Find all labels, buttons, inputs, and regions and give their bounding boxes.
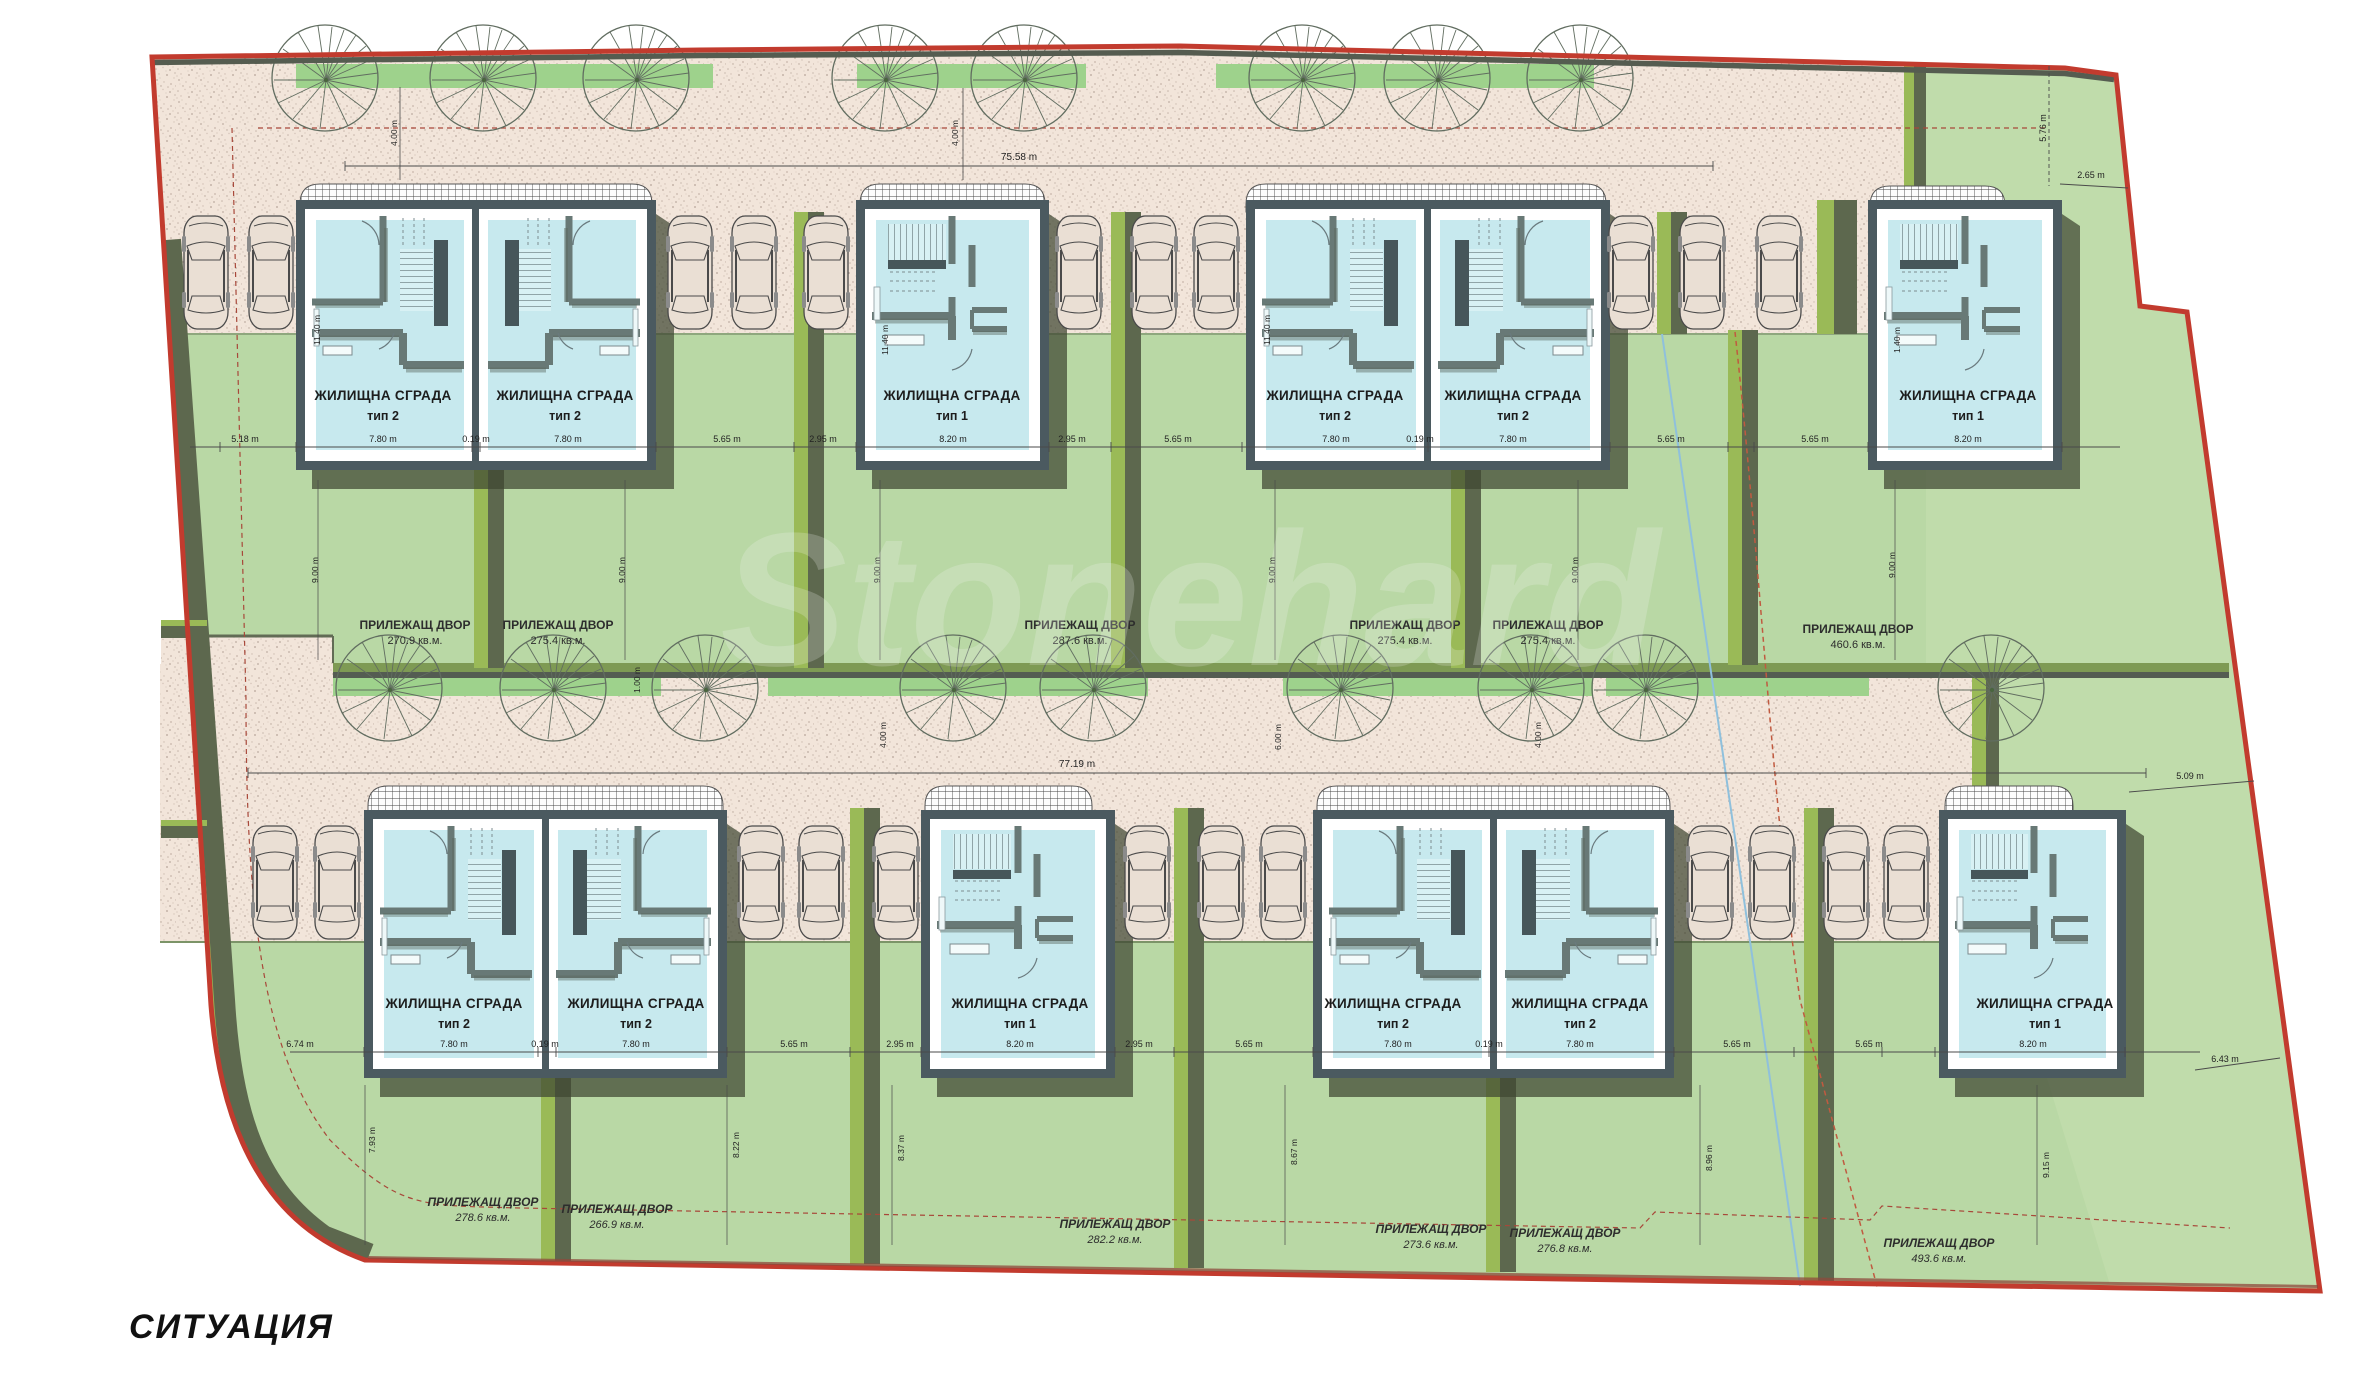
svg-text:2.65 m: 2.65 m (2077, 170, 2105, 180)
svg-text:6.74 m: 6.74 m (286, 1039, 314, 1049)
svg-text:8.20 m: 8.20 m (939, 434, 967, 444)
svg-text:ПРИЛЕЖАЩ ДВОР: ПРИЛЕЖАЩ ДВОР (1884, 1236, 1996, 1250)
svg-text:тип 2: тип 2 (549, 409, 581, 423)
svg-text:тип 2: тип 2 (1497, 409, 1529, 423)
svg-text:тип 2: тип 2 (620, 1017, 652, 1031)
svg-text:273.6 кв.м.: 273.6 кв.м. (1402, 1239, 1458, 1251)
svg-text:5.65 m: 5.65 m (1723, 1039, 1751, 1049)
svg-text:ЖИЛИЩНА СГРАДА: ЖИЛИЩНА СГРАДА (1510, 996, 1648, 1011)
svg-text:276.8 кв.м.: 276.8 кв.м. (1536, 1243, 1592, 1255)
svg-text:2.95 m: 2.95 m (809, 434, 837, 444)
svg-text:75.58 m: 75.58 m (1001, 152, 1037, 163)
svg-text:тип 2: тип 2 (438, 1017, 470, 1031)
svg-text:5.76 m: 5.76 m (2038, 114, 2048, 142)
svg-text:тип 1: тип 1 (1952, 409, 1984, 423)
svg-text:7.80 m: 7.80 m (554, 434, 582, 444)
svg-text:ЖИЛИЩНА СГРАДА: ЖИЛИЩНА СГРАДА (1898, 388, 2036, 403)
svg-text:ПРИЛЕЖАЩ ДВОР: ПРИЛЕЖАЩ ДВОР (428, 1195, 540, 1209)
svg-text:8.20 m: 8.20 m (2019, 1039, 2047, 1049)
svg-text:5.65 m: 5.65 m (1657, 434, 1685, 444)
svg-text:1.40 m: 1.40 m (1892, 327, 1902, 353)
svg-text:5.65 m: 5.65 m (1164, 434, 1192, 444)
svg-text:278.6 кв.м.: 278.6 кв.м. (454, 1212, 510, 1224)
svg-text:СИТУАЦИЯ: СИТУАЦИЯ (129, 1308, 334, 1346)
svg-text:ЖИЛИЩНА СГРАДА: ЖИЛИЩНА СГРАДА (882, 388, 1020, 403)
svg-text:5.65 m: 5.65 m (1235, 1039, 1263, 1049)
svg-text:5.09 m: 5.09 m (2176, 771, 2204, 781)
svg-text:493.6 кв.м.: 493.6 кв.м. (1911, 1253, 1966, 1265)
svg-text:2.95 m: 2.95 m (1058, 434, 1086, 444)
svg-text:2.95 m: 2.95 m (886, 1039, 914, 1049)
svg-text:7.80 m: 7.80 m (440, 1039, 468, 1049)
svg-text:5.18 m: 5.18 m (231, 434, 259, 444)
svg-text:ЖИЛИЩНА СГРАДА: ЖИЛИЩНА СГРАДА (1323, 996, 1461, 1011)
svg-text:1.00 m: 1.00 m (632, 667, 642, 693)
svg-text:0.19 m: 0.19 m (1475, 1039, 1503, 1049)
svg-text:0.19 m: 0.19 m (531, 1039, 559, 1049)
svg-text:9.00 m: 9.00 m (617, 557, 627, 583)
svg-text:282.2 кв.м.: 282.2 кв.м. (1086, 1234, 1142, 1246)
svg-text:ЖИЛИЩНА СГРАДА: ЖИЛИЩНА СГРАДА (384, 996, 522, 1011)
svg-text:7.80 m: 7.80 m (1322, 434, 1350, 444)
svg-text:ПРИЛЕЖАЩ ДВОР: ПРИЛЕЖАЩ ДВОР (1376, 1222, 1488, 1236)
svg-text:5.65 m: 5.65 m (780, 1039, 808, 1049)
svg-text:7.80 m: 7.80 m (369, 434, 397, 444)
svg-text:ЖИЛИЩНА СГРАДА: ЖИЛИЩНА СГРАДА (1443, 388, 1581, 403)
svg-text:ПРИЛЕЖАЩ ДВОР: ПРИЛЕЖАЩ ДВОР (359, 618, 470, 632)
svg-text:ЖИЛИЩНА СГРАДА: ЖИЛИЩНА СГРАДА (313, 388, 451, 403)
svg-text:270.9 кв.м.: 270.9 кв.м. (388, 635, 443, 647)
svg-text:Stonehard: Stonehard (720, 494, 1663, 706)
svg-text:ПРИЛЕЖАЩ ДВОР: ПРИЛЕЖАЩ ДВОР (1510, 1226, 1622, 1240)
svg-text:8.37 m: 8.37 m (896, 1135, 906, 1161)
svg-text:9.00 m: 9.00 m (310, 557, 320, 583)
svg-text:7.93 m: 7.93 m (367, 1127, 377, 1153)
svg-text:ЖИЛИЩНА СГРАДА: ЖИЛИЩНА СГРАДА (1975, 996, 2113, 1011)
svg-text:8.22 m: 8.22 m (731, 1132, 741, 1158)
svg-text:ПРИЛЕЖАЩ ДВОР: ПРИЛЕЖАЩ ДВОР (1802, 622, 1913, 636)
svg-text:ЖИЛИЩНА СГРАДА: ЖИЛИЩНА СГРАДА (495, 388, 633, 403)
svg-text:тип 1: тип 1 (2029, 1017, 2061, 1031)
svg-text:0.19 m: 0.19 m (1406, 434, 1434, 444)
svg-text:460.6 кв.м.: 460.6 кв.м. (1831, 639, 1886, 651)
svg-text:275.4 кв.м.: 275.4 кв.м. (531, 635, 586, 647)
svg-text:тип 2: тип 2 (1564, 1017, 1596, 1031)
svg-text:4.00 m: 4.00 m (878, 722, 888, 748)
svg-text:4.00 m: 4.00 m (950, 120, 960, 146)
svg-text:9.15 m: 9.15 m (2041, 1152, 2051, 1178)
svg-text:6.43 m: 6.43 m (2211, 1054, 2239, 1064)
svg-text:5.65 m: 5.65 m (713, 434, 741, 444)
svg-text:5.65 m: 5.65 m (1855, 1039, 1883, 1049)
svg-text:9.00 m: 9.00 m (1887, 552, 1897, 578)
svg-text:тип 2: тип 2 (367, 409, 399, 423)
svg-text:11.40 m: 11.40 m (312, 315, 322, 345)
svg-text:7.80 m: 7.80 m (1566, 1039, 1594, 1049)
svg-text:ЖИЛИЩНА СГРАДА: ЖИЛИЩНА СГРАДА (1265, 388, 1403, 403)
svg-text:8.96 m: 8.96 m (1704, 1145, 1714, 1171)
svg-text:0.19 m: 0.19 m (462, 434, 490, 444)
svg-text:ПРИЛЕЖАЩ ДВОР: ПРИЛЕЖАЩ ДВОР (1060, 1217, 1172, 1231)
svg-text:266.9 кв.м.: 266.9 кв.м. (588, 1219, 644, 1231)
svg-text:7.80 m: 7.80 m (622, 1039, 650, 1049)
svg-text:2.95 m: 2.95 m (1125, 1039, 1153, 1049)
svg-text:11.40 m: 11.40 m (880, 325, 890, 355)
svg-text:4.00 m: 4.00 m (1533, 722, 1543, 748)
svg-text:8.20 m: 8.20 m (1006, 1039, 1034, 1049)
svg-text:тип 1: тип 1 (1004, 1017, 1036, 1031)
svg-text:ЖИЛИЩНА СГРАДА: ЖИЛИЩНА СГРАДА (950, 996, 1088, 1011)
svg-text:тип 1: тип 1 (936, 409, 968, 423)
svg-text:8.20 m: 8.20 m (1954, 434, 1982, 444)
svg-text:тип 2: тип 2 (1319, 409, 1351, 423)
svg-text:7.80 m: 7.80 m (1384, 1039, 1412, 1049)
svg-text:ПРИЛЕЖАЩ ДВОР: ПРИЛЕЖАЩ ДВОР (562, 1202, 674, 1216)
svg-text:ЖИЛИЩНА СГРАДА: ЖИЛИЩНА СГРАДА (566, 996, 704, 1011)
svg-text:ПРИЛЕЖАЩ ДВОР: ПРИЛЕЖАЩ ДВОР (502, 618, 613, 632)
svg-text:77.19 m: 77.19 m (1059, 759, 1095, 770)
svg-text:6.00 m: 6.00 m (1273, 724, 1283, 750)
svg-text:5.65 m: 5.65 m (1801, 434, 1829, 444)
svg-text:4.00 m: 4.00 m (389, 120, 399, 146)
svg-text:7.80 m: 7.80 m (1499, 434, 1527, 444)
svg-text:11.40 m: 11.40 m (1262, 315, 1272, 345)
svg-text:тип 2: тип 2 (1377, 1017, 1409, 1031)
svg-text:8.67 m: 8.67 m (1289, 1139, 1299, 1165)
